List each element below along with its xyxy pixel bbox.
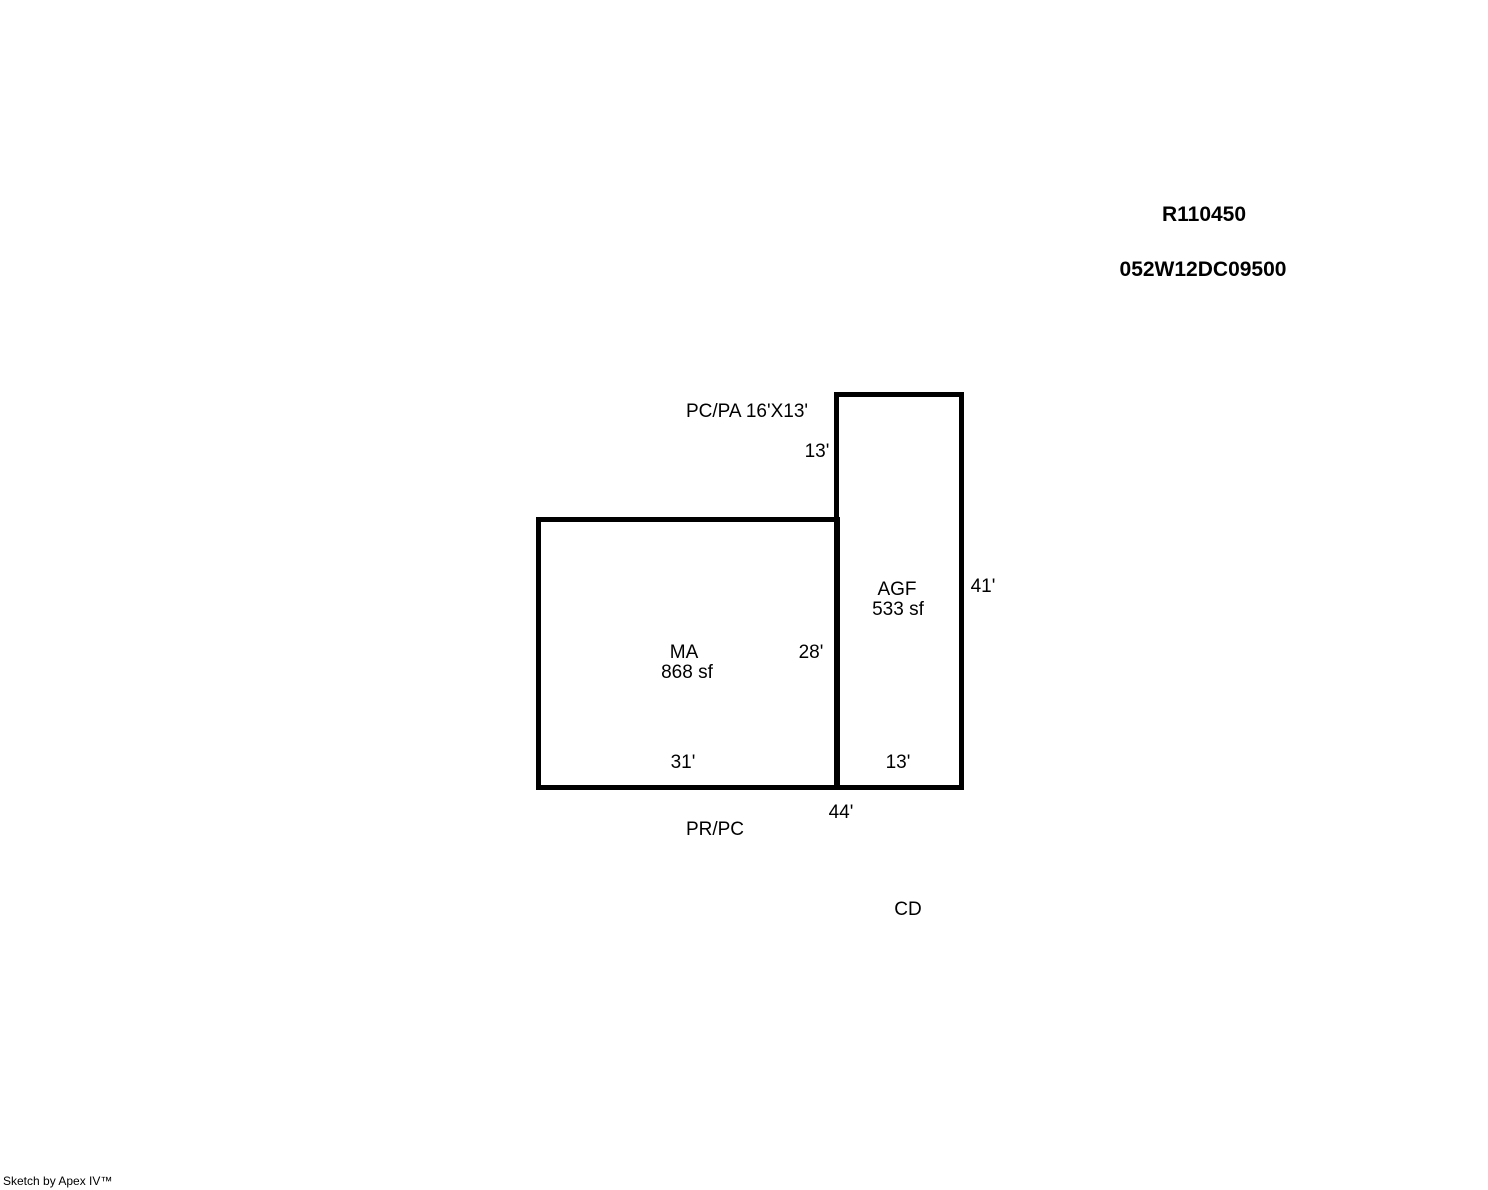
agf-bottom-dim: 13' bbox=[886, 753, 911, 773]
agf-right-dim: 41' bbox=[971, 577, 996, 597]
agf-top-dim: 13' bbox=[805, 442, 830, 462]
apex-sketch-page: R110450 052W12DC09500 PC/PA 16'X13' 13' … bbox=[0, 0, 1488, 1190]
total-bottom-dim: 44' bbox=[829, 803, 854, 823]
ma-right-dim: 28' bbox=[799, 643, 824, 663]
sketch-credit: Sketch by Apex IV™ bbox=[3, 1174, 112, 1188]
pc-pa-label: PC/PA 16'X13' bbox=[686, 402, 808, 422]
agf-code-label: AGF bbox=[877, 580, 916, 600]
record-number-label: R110450 bbox=[1162, 203, 1246, 227]
agf-area-label: 533 sf bbox=[872, 600, 924, 620]
parcel-number-label: 052W12DC09500 bbox=[1120, 258, 1287, 282]
ma-bottom-dim: 31' bbox=[671, 753, 696, 773]
ma-code-label: MA bbox=[670, 643, 699, 663]
cd-label: CD bbox=[894, 900, 921, 920]
pr-pc-label: PR/PC bbox=[686, 820, 744, 840]
ma-area-label: 868 sf bbox=[661, 663, 713, 683]
